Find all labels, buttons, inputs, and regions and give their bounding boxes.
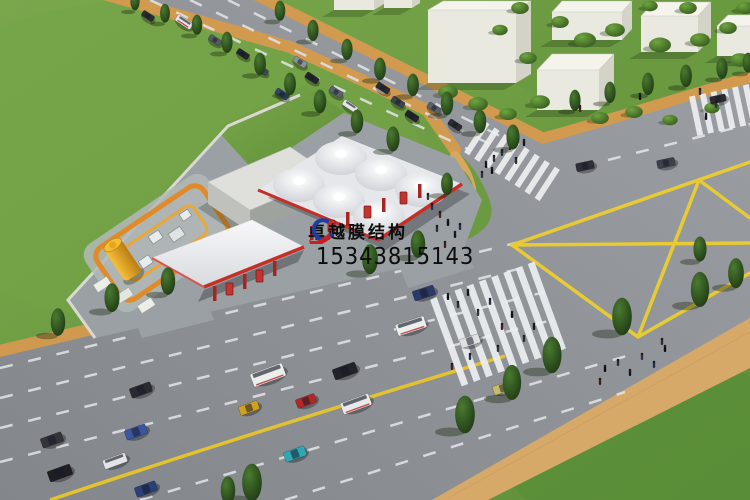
car	[575, 159, 598, 175]
bus	[395, 315, 431, 340]
bush	[638, 1, 658, 12]
car	[373, 81, 393, 99]
bush	[731, 2, 750, 14]
pedestrian	[454, 231, 457, 238]
pedestrian	[447, 219, 450, 226]
pedestrian	[511, 311, 514, 318]
pedestrian	[489, 298, 492, 305]
tree	[206, 476, 235, 500]
pedestrian	[477, 309, 480, 316]
tree	[121, 0, 140, 14]
pedestrian	[604, 365, 607, 372]
pedestrian	[431, 203, 434, 210]
tree	[301, 90, 326, 117]
tree	[435, 396, 475, 437]
tree	[395, 74, 419, 100]
pedestrian	[447, 293, 450, 300]
bush	[546, 16, 568, 28]
car	[326, 85, 346, 103]
pedestrian	[617, 359, 620, 366]
tree	[346, 244, 378, 277]
pedestrian	[641, 353, 644, 360]
car	[134, 479, 162, 500]
bush	[620, 106, 642, 118]
tree	[592, 298, 632, 339]
tree	[272, 73, 296, 99]
pedestrian	[459, 223, 462, 230]
tree	[523, 337, 561, 377]
rendering-canvas: 卓越膜结构 15343815143	[0, 0, 750, 500]
pedestrian	[705, 113, 708, 120]
pedestrian	[715, 101, 718, 108]
pedestrian	[664, 345, 667, 352]
tree	[672, 272, 709, 310]
pedestrian	[523, 139, 526, 146]
pedestrian	[457, 301, 460, 308]
pedestrian	[485, 161, 488, 168]
pedestrian	[491, 167, 494, 174]
tree	[373, 127, 400, 156]
pedestrian	[467, 289, 470, 296]
bus	[250, 362, 291, 391]
tree	[330, 39, 353, 64]
pedestrian	[699, 88, 702, 95]
pedestrian	[497, 345, 500, 352]
building	[416, 1, 531, 90]
car	[124, 422, 152, 443]
tree	[630, 73, 654, 99]
tree	[362, 58, 386, 84]
car	[238, 399, 264, 419]
car	[302, 71, 322, 89]
van	[102, 451, 132, 473]
tree	[429, 173, 453, 199]
pedestrian	[599, 378, 602, 385]
pedestrian	[653, 361, 656, 368]
pedestrian	[436, 225, 439, 232]
bus	[340, 392, 376, 418]
bush	[658, 115, 678, 126]
car	[129, 380, 157, 401]
car	[47, 463, 77, 486]
tree	[89, 283, 119, 315]
tree	[150, 4, 170, 26]
pedestrian	[439, 211, 442, 218]
cars	[40, 10, 730, 500]
car	[290, 55, 310, 73]
pedestrian	[533, 323, 536, 330]
car	[656, 156, 679, 172]
tree	[146, 267, 175, 298]
bush	[494, 108, 516, 120]
car	[40, 430, 68, 451]
pedestrian	[629, 369, 632, 376]
pedestrian	[661, 338, 664, 345]
scene-objects	[0, 0, 750, 500]
pedestrian	[444, 241, 447, 248]
tree	[680, 237, 707, 266]
car	[332, 361, 362, 384]
tree	[668, 65, 692, 91]
car	[402, 109, 422, 127]
car	[234, 48, 253, 65]
pedestrian	[481, 171, 484, 178]
pedestrian	[523, 335, 526, 342]
pedestrian	[493, 155, 496, 162]
pedestrian	[469, 353, 472, 360]
tree	[712, 258, 744, 291]
pedestrian	[427, 193, 430, 200]
pedestrian	[501, 323, 504, 330]
bush	[463, 97, 488, 111]
tree	[296, 20, 319, 45]
bush	[525, 95, 550, 109]
tree	[36, 308, 65, 339]
pedestrian	[515, 157, 518, 164]
tree	[396, 230, 425, 261]
pedestrian	[451, 363, 454, 370]
crosswalk	[689, 84, 750, 136]
car	[295, 392, 321, 412]
car	[283, 444, 311, 465]
tree	[264, 1, 285, 25]
